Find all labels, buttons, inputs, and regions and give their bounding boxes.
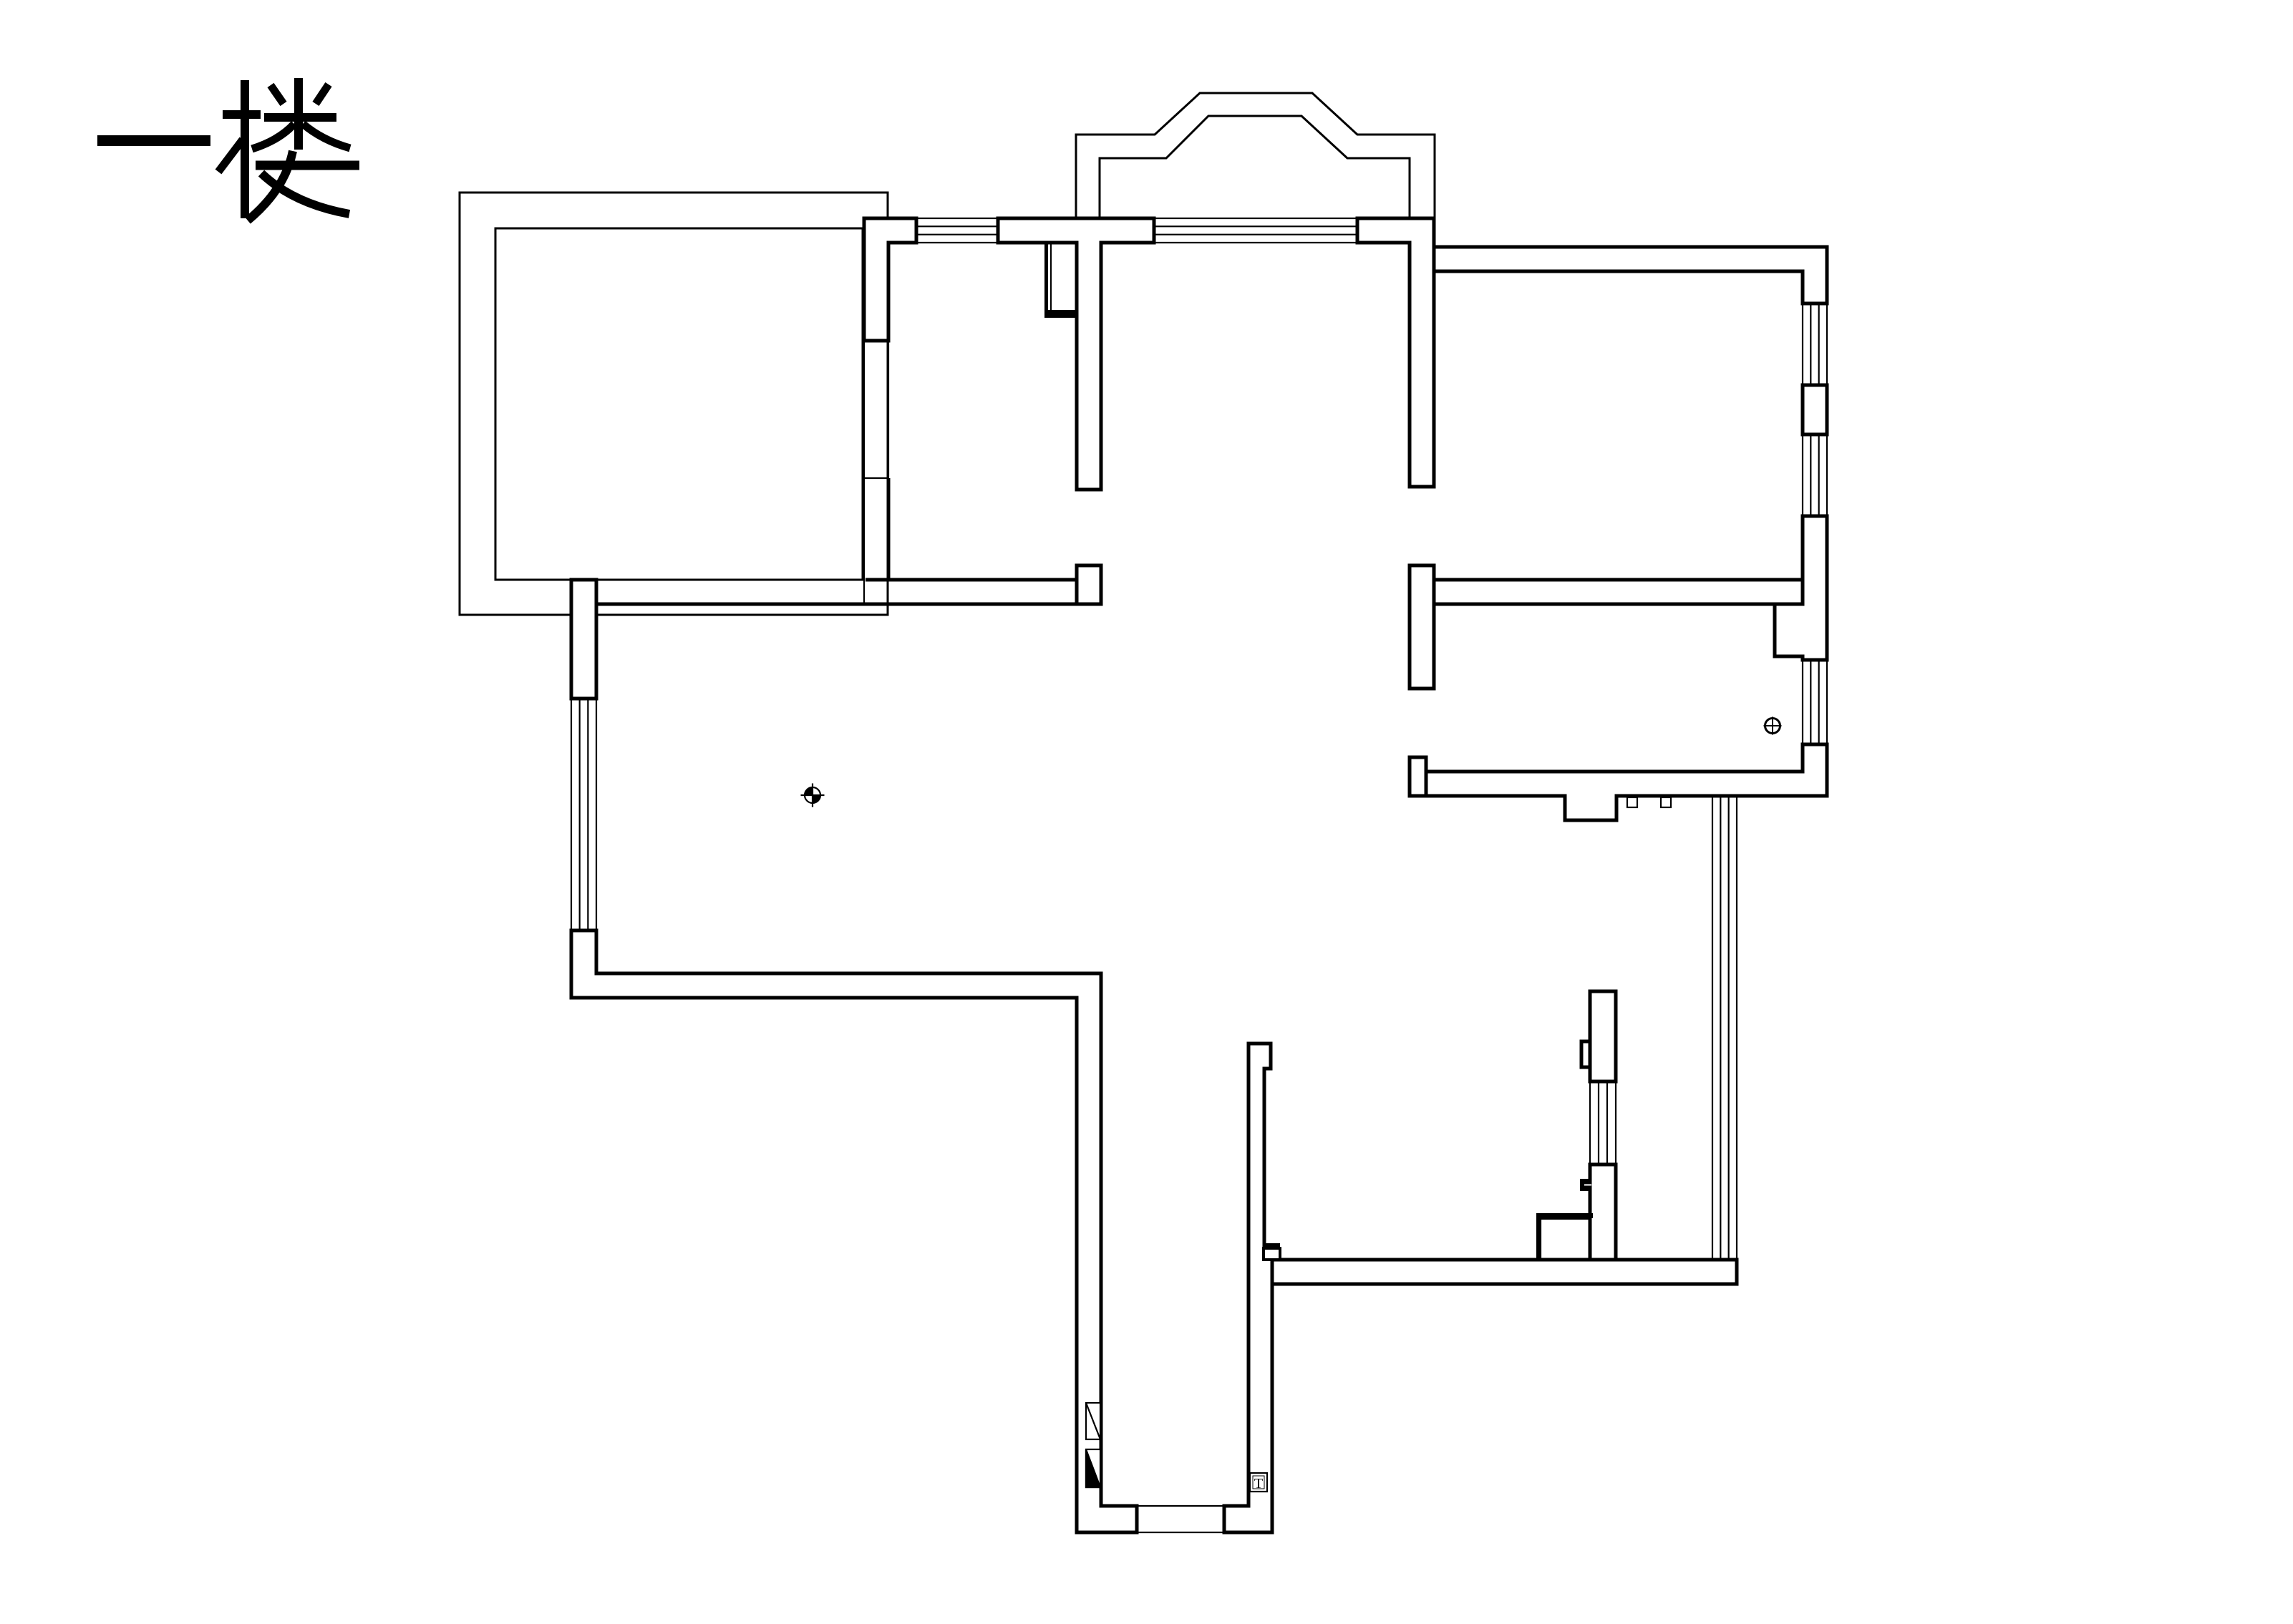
svg-text:T: T — [1254, 1476, 1263, 1492]
